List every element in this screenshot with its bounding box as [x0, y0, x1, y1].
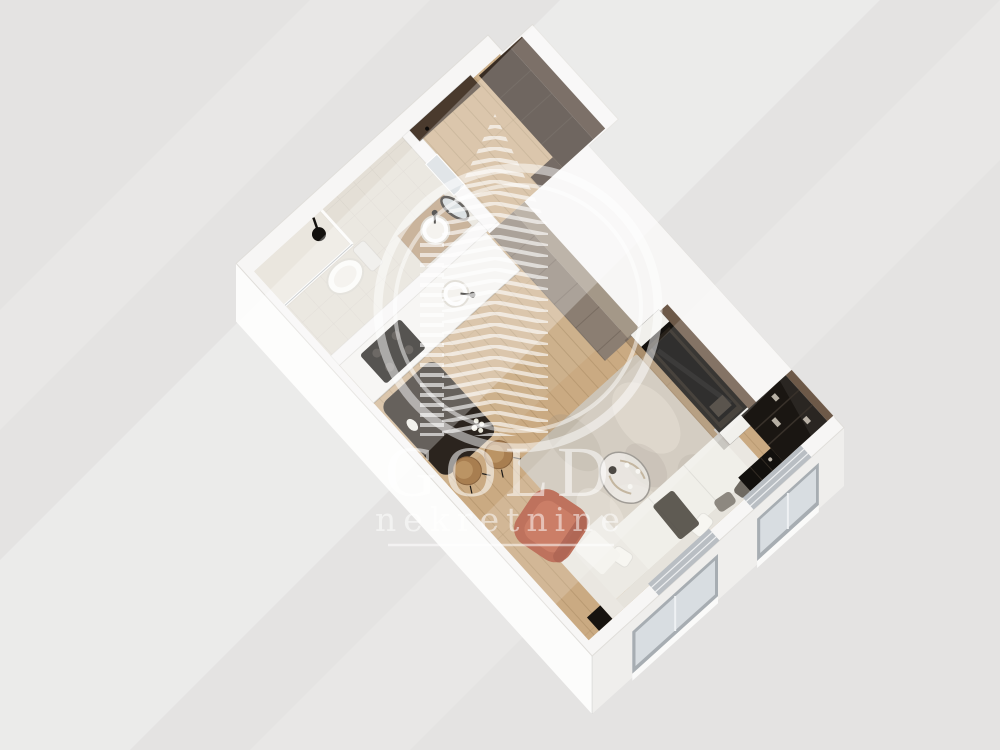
floor-plan-svg: GOLD nekretnine — [0, 0, 1000, 750]
logo-building-slats — [420, 240, 444, 436]
watermark-subtitle: nekretnine — [375, 500, 627, 539]
floor-plan-render: GOLD nekretnine — [0, 0, 1000, 750]
